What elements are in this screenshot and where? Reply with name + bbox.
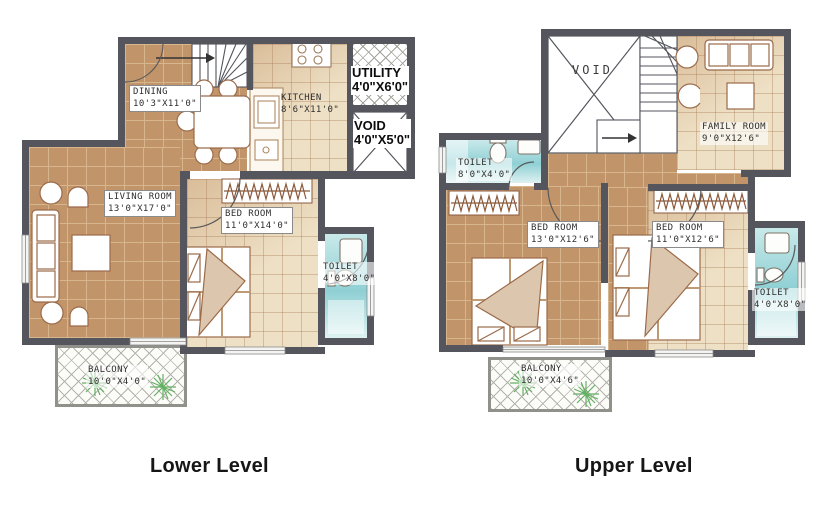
lower-level-caption: Lower Level	[150, 455, 269, 478]
room-label-void-upper: VOID	[572, 63, 613, 79]
room-dims: 8'0"X4'0"	[458, 170, 510, 182]
room-name: VOID	[354, 119, 410, 133]
upper-stairs	[597, 36, 677, 153]
room-label-toilet-lower: TOILET 4'0"X8'0"	[321, 262, 377, 285]
room-label-bedroom-upper-right: BED ROOM 11'0"X12'6"	[652, 221, 724, 248]
floor-plan-sheet: DINING 10'3"X11'0" KITCHEN 8'6"X11'0" UT…	[0, 0, 825, 518]
room-dims: 4'0"X8'0"	[754, 300, 806, 312]
room-dims: 10'3"X11'0"	[133, 99, 197, 111]
room-label-balcony-lower: BALCONY 10'0"X4'0"	[86, 365, 148, 388]
room-name: BED ROOM	[531, 223, 595, 235]
room-name: FAMILY ROOM	[702, 122, 766, 134]
room-label-family: FAMILY ROOM 9'0"X12'6"	[700, 122, 768, 145]
upper-hall-strip	[608, 187, 648, 350]
room-label-kitchen: KITCHEN 8'6"X11'0"	[281, 93, 339, 116]
room-dims: 11'0"X14'0"	[225, 221, 289, 233]
upper-hall-floor	[548, 153, 677, 187]
room-dims: 9'0"X12'6"	[702, 134, 766, 146]
room-dims: 13'0"X12'6"	[531, 235, 595, 247]
room-label-living: LIVING ROOM 13'0"X17'0"	[104, 190, 176, 217]
upper-bedroom-left-floor	[446, 186, 601, 345]
upper-hall-floor-2	[677, 173, 748, 187]
upper-toilet-right-floor	[755, 228, 798, 338]
room-name: LIVING ROOM	[108, 192, 172, 204]
room-label-bedroom-upper-left: BED ROOM 13'0"X12'6"	[527, 221, 599, 248]
room-dims: 4'0"X6'0"	[352, 80, 408, 94]
lower-bedroom-floor	[187, 179, 318, 347]
room-label-void-lower: VOID 4'0"X5'0"	[353, 119, 411, 148]
room-name: BED ROOM	[225, 209, 289, 221]
upper-bedroom-right-floor	[648, 191, 748, 350]
room-dims: 8'6"X11'0"	[281, 105, 339, 117]
room-name: BALCONY	[88, 365, 146, 377]
room-dims: 10'0"X4'0"	[88, 377, 146, 389]
room-dims: 10'0"X4'6"	[521, 376, 579, 388]
room-name: UTILITY	[352, 66, 408, 80]
room-name: BED ROOM	[656, 223, 720, 235]
lower-toilet-floor	[325, 234, 367, 338]
room-label-balcony-upper: BALCONY 10'0"X4'6"	[519, 364, 581, 387]
room-name: TOILET	[754, 288, 806, 300]
room-name: BALCONY	[521, 364, 579, 376]
upper-level-caption: Upper Level	[575, 455, 693, 478]
room-dims: 4'0"X8'0"	[323, 274, 375, 286]
room-name: TOILET	[458, 158, 510, 170]
upper-family-floor	[677, 36, 784, 170]
room-label-bedroom-lower: BED ROOM 11'0"X14'0"	[221, 207, 293, 234]
room-name: VOID	[572, 63, 613, 79]
room-dims: 13'0"X17'0"	[108, 204, 172, 216]
lower-living-floor	[29, 147, 180, 338]
room-label-utility: UTILITY 4'0"X6'0"	[351, 66, 409, 95]
room-name: KITCHEN	[281, 93, 339, 105]
room-name: TOILET	[323, 262, 375, 274]
room-dims: 4'0"X5'0"	[354, 133, 410, 147]
room-label-toilet-upper-right: TOILET 4'0"X8'0"	[752, 288, 808, 311]
upper-void-x	[548, 36, 640, 153]
upper-stairs-arrow	[602, 133, 637, 143]
room-label-toilet-upper-left: TOILET 8'0"X4'0"	[456, 158, 512, 181]
room-label-dining: DINING 10'3"X11'0"	[129, 85, 201, 112]
room-dims: 11'0"X12'6"	[656, 235, 720, 247]
room-name: DINING	[133, 87, 197, 99]
